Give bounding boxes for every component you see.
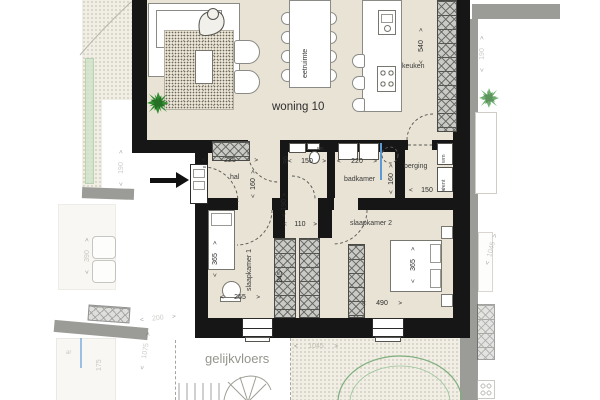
dim-slaapkamer2-depth: <365> bbox=[410, 247, 418, 283]
site-wall-band-right-bottom bbox=[460, 338, 470, 400]
window-sill-1 bbox=[245, 337, 270, 342]
wall-right bbox=[453, 128, 470, 338]
dining-table bbox=[289, 0, 331, 88]
site-wall-band-topright bbox=[472, 4, 560, 19]
wall-corridor-right-top bbox=[318, 198, 334, 210]
label-slaapkamer1: slaapkamer 1 bbox=[246, 233, 253, 291]
label-berging: berging bbox=[404, 163, 427, 170]
label-badkamer: badkamer bbox=[344, 176, 375, 183]
window-glass-line bbox=[243, 328, 272, 329]
closet-strip-b bbox=[299, 238, 320, 318]
wall-bath-bottom bbox=[358, 198, 400, 210]
entrance-arrow-icon bbox=[176, 172, 189, 188]
wall-hall-bottom-a bbox=[208, 198, 238, 210]
dim-hal-depth: <160> bbox=[250, 170, 258, 198]
unit-title: woning 10 bbox=[272, 101, 324, 113]
site-door-right bbox=[475, 112, 497, 194]
floor-level-label: gelijkvloers bbox=[205, 351, 269, 366]
dim-hal-width: <225> bbox=[202, 157, 258, 165]
staircase-icon bbox=[179, 376, 271, 400]
site-furniture-b bbox=[92, 260, 116, 283]
wc-handbasin bbox=[289, 143, 306, 153]
dim-gang-depth: <190> bbox=[281, 193, 289, 217]
site-furniture-a bbox=[92, 236, 116, 259]
bar-stool bbox=[352, 54, 365, 68]
site-hatch-left bbox=[87, 305, 130, 324]
site-stove-icon bbox=[477, 380, 495, 399]
shower-glass bbox=[380, 143, 382, 180]
sink-faucet bbox=[384, 25, 391, 32]
stove-icon bbox=[377, 66, 396, 92]
wall-bottom bbox=[195, 318, 470, 338]
bed-2-pillow-b bbox=[430, 269, 441, 288]
window-sill-2 bbox=[375, 337, 401, 342]
window-bedroom2 bbox=[372, 318, 404, 337]
bar-stool bbox=[352, 98, 365, 112]
dim-keuken-depth: <540> bbox=[418, 28, 426, 64]
front-door-panel-a bbox=[193, 169, 205, 178]
nightstand-1 bbox=[441, 226, 453, 239]
entrance-arrow-shaft bbox=[150, 178, 176, 183]
bed-2-pillow-a bbox=[430, 244, 441, 263]
wall-corridor-right bbox=[318, 210, 332, 238]
dim-slaapkamer1-depth: <365> bbox=[212, 241, 220, 277]
armchair-1 bbox=[234, 40, 260, 64]
dim-slaapkamer1-width: <255> bbox=[220, 294, 260, 302]
front-door-panel-b bbox=[193, 181, 205, 190]
floorplan-canvas: <190> <390> <200> <1075> ar 175 gelijkvl… bbox=[0, 0, 600, 400]
label-wc: wc bbox=[317, 146, 324, 152]
dim-garden-1045: <1045> bbox=[294, 343, 338, 351]
dim-badkamer-depth: <160> bbox=[388, 164, 396, 194]
bar-stool bbox=[352, 76, 365, 90]
label-eetruimte: eetruimte bbox=[302, 32, 309, 78]
window-bedroom1 bbox=[242, 318, 273, 337]
dim-entry-left: <190> bbox=[118, 150, 126, 186]
wall-right-top bbox=[457, 0, 470, 130]
label-hal: hal bbox=[230, 174, 239, 181]
dim-berging-width: <150> bbox=[409, 187, 445, 195]
dim-wc-width: <150> bbox=[288, 158, 326, 166]
site-label-fragment: ar bbox=[66, 350, 71, 356]
site-wall-band-top bbox=[82, 187, 134, 200]
dim-badkamer-width: <220> bbox=[337, 158, 377, 166]
site-room-bottomleft bbox=[56, 338, 116, 400]
sink-basin bbox=[381, 14, 393, 23]
party-wall-hatched bbox=[437, 0, 457, 132]
coffee-table bbox=[195, 50, 213, 84]
dim-site-200: <200> bbox=[140, 313, 177, 325]
site-glazing-line bbox=[80, 338, 82, 368]
bed-1-pillow bbox=[211, 213, 232, 226]
armchair-2 bbox=[234, 70, 260, 94]
plant-icon-right bbox=[479, 88, 499, 108]
hedge-strip bbox=[85, 58, 94, 184]
window-glass-line bbox=[373, 328, 403, 329]
wall-storage-bottom bbox=[400, 198, 455, 210]
wall-wc-right bbox=[327, 140, 335, 198]
washing-machine-label: wm bbox=[441, 145, 447, 163]
dim-entry-right: <190> bbox=[479, 36, 487, 72]
site-hatch-right bbox=[477, 304, 495, 360]
label-keuken: keuken bbox=[402, 63, 425, 70]
dim-gang-width: <110> bbox=[283, 221, 317, 229]
dim-slaapkamer2-width: <490> bbox=[362, 300, 402, 308]
nightstand-2 bbox=[441, 294, 453, 307]
label-slaapkamer2: slaapkamer 2 bbox=[350, 220, 392, 227]
wall-left-top bbox=[132, 0, 147, 153]
dim-site-390: <390> bbox=[84, 238, 92, 274]
dim-kast-depth: <245> bbox=[277, 255, 285, 299]
site-boundary-dashed-left bbox=[175, 340, 176, 400]
dim-site-175: 175 bbox=[96, 354, 104, 372]
